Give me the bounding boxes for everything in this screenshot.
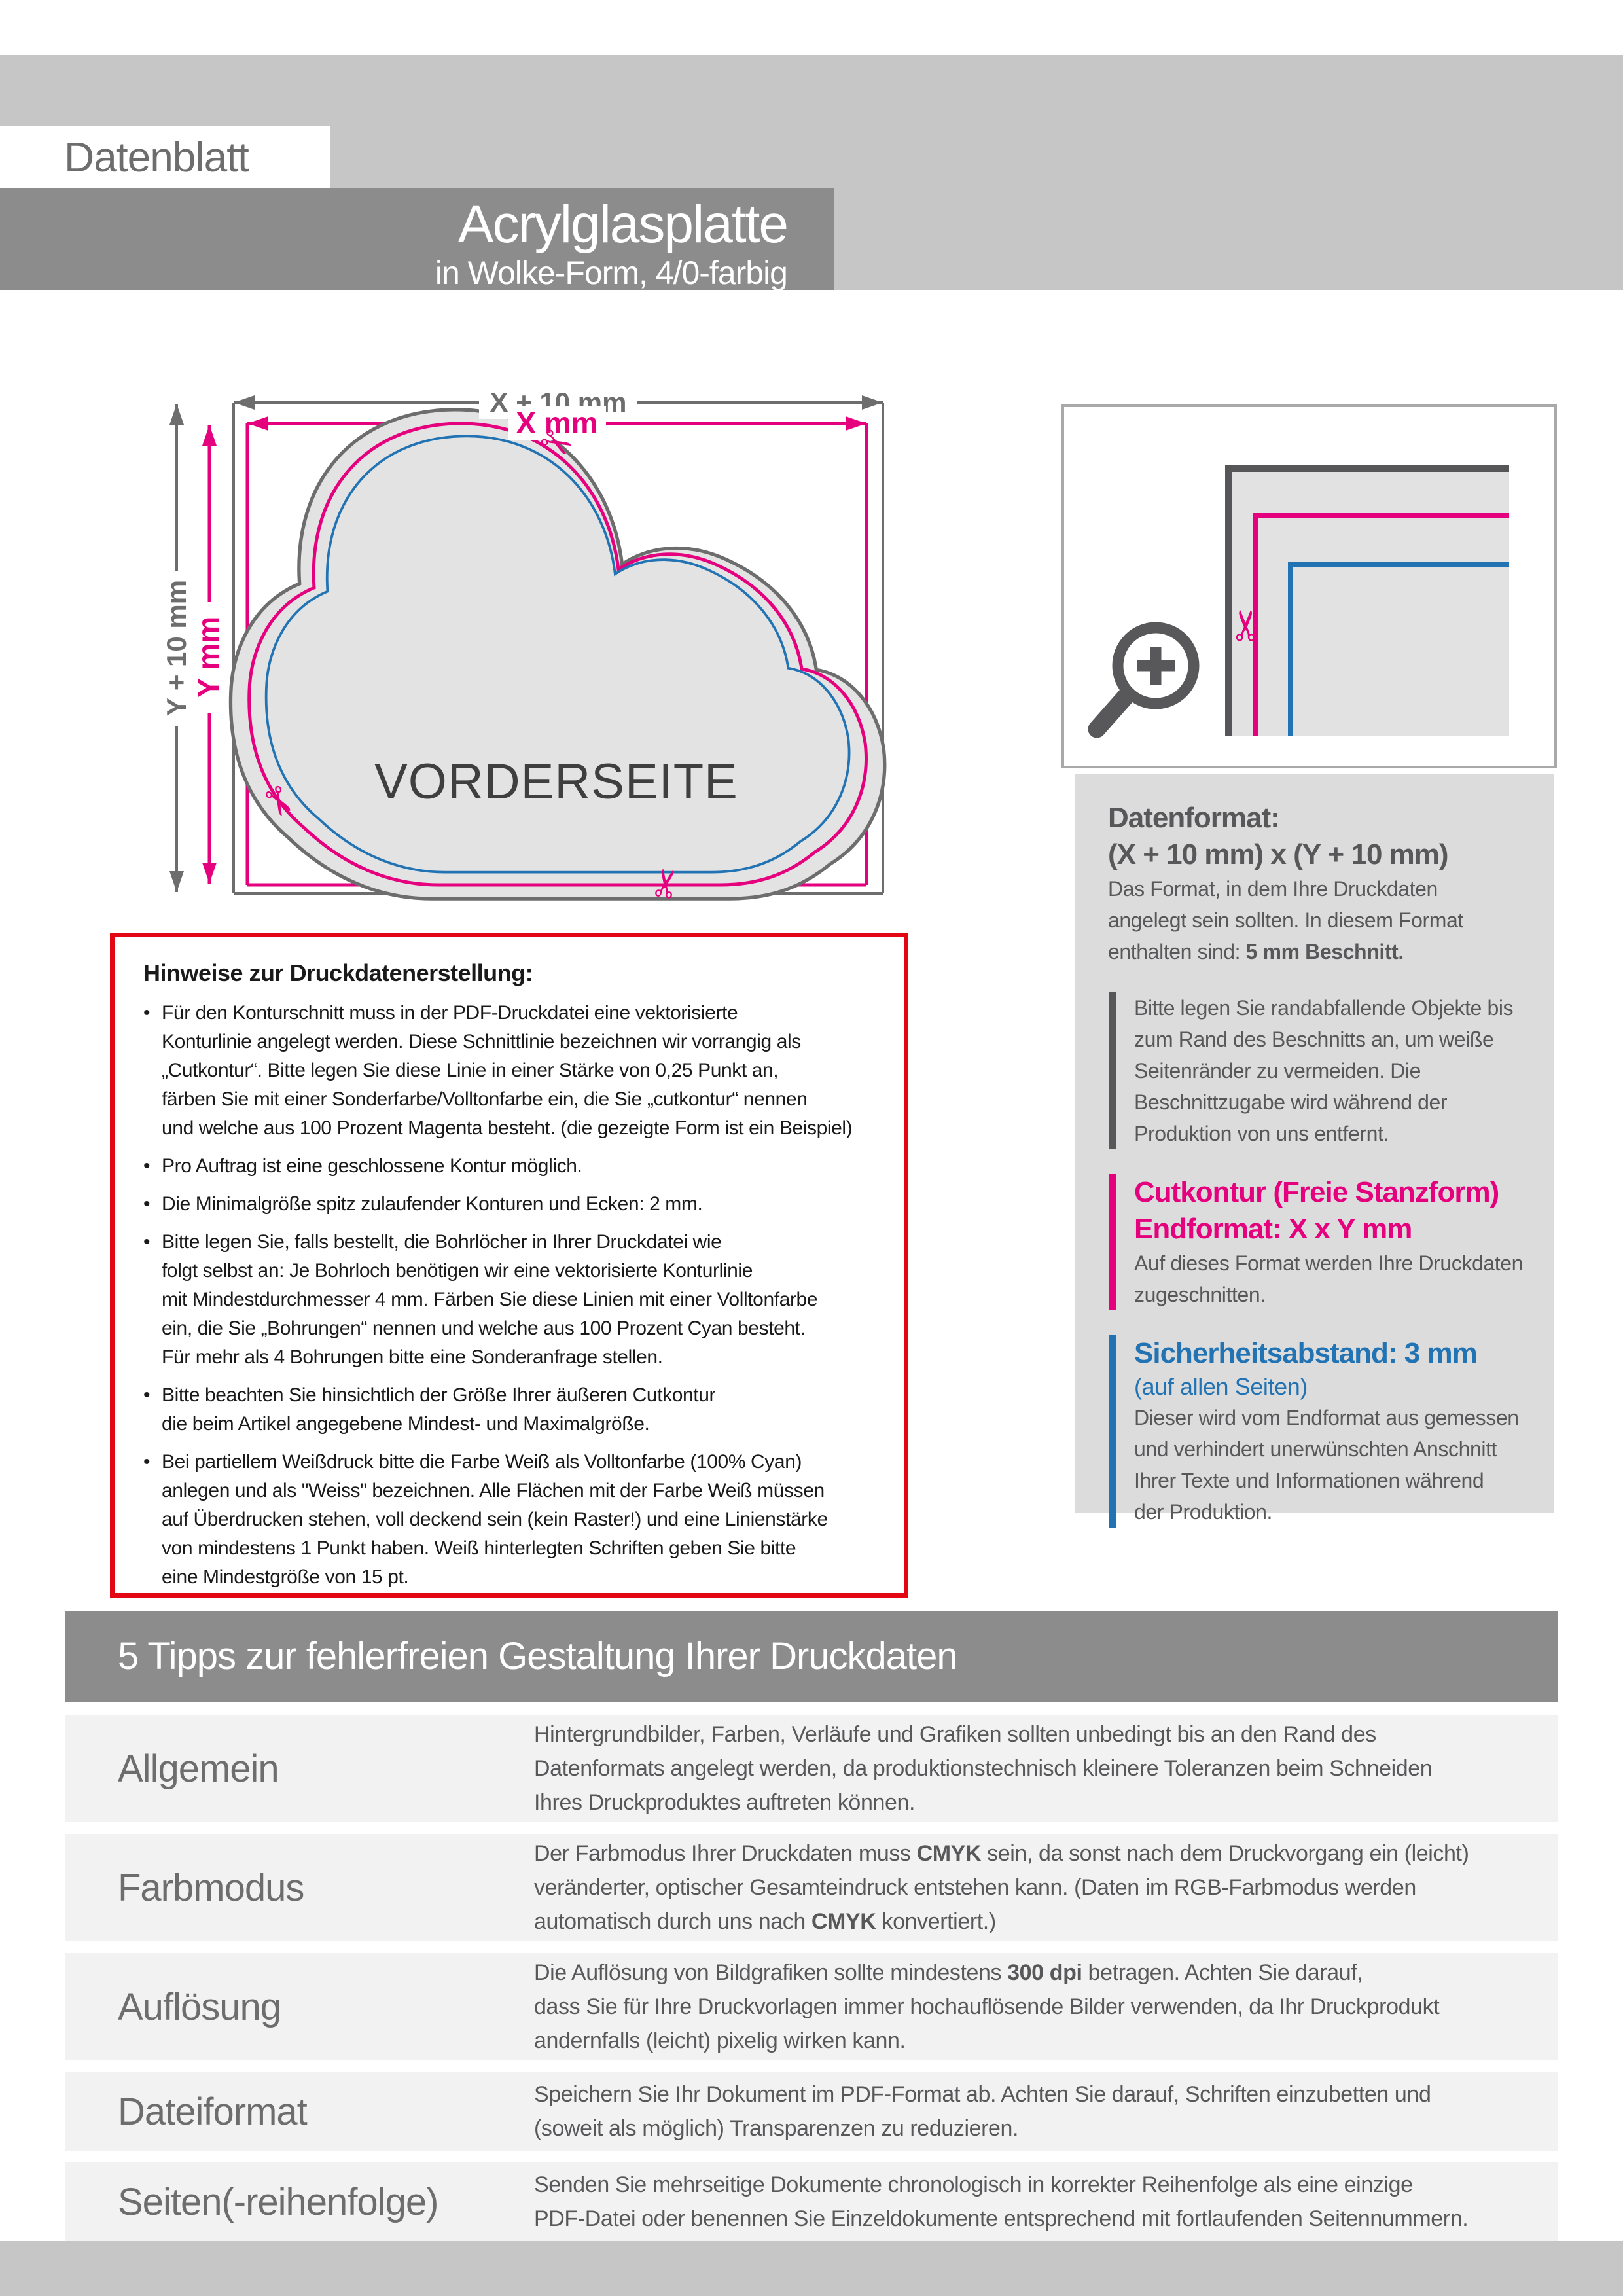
tip-description: Die Auflösung von Bildgrafiken sollte mi… [534, 1956, 1439, 2058]
product-title: Acrylglasplatte [0, 194, 787, 255]
tip-row-allgemein: Allgemein Hintergrundbilder, Farben, Ver… [65, 1715, 1558, 1822]
text-line: automatisch durch uns nach CMYK konverti… [534, 1905, 1469, 1939]
spacer [1108, 967, 1541, 992]
text-line: angelegt sein sollten. In diesem Format [1108, 905, 1541, 936]
bleed-note-text: Bitte legen Sie randabfallende Objekte b… [1134, 992, 1541, 1149]
product-title-banner: Acrylglasplatte in Wolke-Form, 4/0-farbi… [0, 188, 834, 290]
text-segment: 300 dpi [1007, 1960, 1082, 1985]
note-bullet-text: Die Minimalgröße spitz zulaufender Kontu… [162, 1190, 702, 1219]
safety-section: Sicherheitsabstand: 3 mm (auf allen Seit… [1109, 1335, 1541, 1528]
bullet-dot: • [143, 1448, 162, 1592]
text-line: mit Mindestdurchmesser 4 mm. Färben Sie … [162, 1285, 817, 1314]
datenformat-formula: (X + 10 mm) x (Y + 10 mm) [1108, 836, 1541, 873]
text-line: Der Farbmodus Ihrer Druckdaten muss CMYK… [534, 1837, 1469, 1871]
text-line: Für mehr als 4 Bohrungen bitte eine Sond… [162, 1343, 817, 1372]
text-segment: konvertiert.) [876, 1909, 995, 1934]
dim-y-inner-label: Y mm [191, 617, 225, 698]
text-line: Hintergrundbilder, Farben, Verläufe und … [534, 1717, 1432, 1751]
notes-heading: Hinweise zur Druckdatenerstellung: [143, 957, 887, 990]
text-line: Produktion von uns entfernt. [1134, 1118, 1541, 1149]
bullet-dot: • [143, 1190, 162, 1219]
text-line: Das Format, in dem Ihre Druckdaten [1108, 873, 1541, 905]
text-line: Auf dieses Format werden Ihre Druckdaten [1134, 1247, 1541, 1279]
text-line: dass Sie für Ihre Druckvorlagen immer ho… [534, 1990, 1439, 2024]
product-subtitle: in Wolke-Form, 4/0-farbig [0, 255, 787, 291]
text-line: Für den Konturschnitt muss in der PDF-Dr… [162, 999, 852, 1028]
tip-row-aufloesung: Auflösung Die Auflösung von Bildgrafiken… [65, 1953, 1558, 2060]
text-segment: automatisch durch uns nach [534, 1909, 811, 1934]
tip-row-farbmodus: Farbmodus Der Farbmodus Ihrer Druckdaten… [65, 1834, 1558, 1941]
note-bullet-text: Bei partiellem Weißdruck bitte die Farbe… [162, 1448, 828, 1592]
cutkontur-section: Cutkontur (Freie Stanzform)Endformat: X … [1109, 1174, 1541, 1310]
dim-y-outer-label: Y + 10 mm [161, 580, 192, 716]
text-line: folgt selbst an: Je Bohrloch benötigen w… [162, 1257, 817, 1285]
text-line: eine Mindestgröße von 15 pt. [162, 1563, 828, 1592]
text-line: färben Sie mit einer Sonderfarbe/Vollton… [162, 1085, 852, 1114]
detail-safety-line-h [1288, 562, 1509, 567]
bullet-dot: • [143, 999, 162, 1143]
text-line: Endformat: X x Y mm [1134, 1211, 1541, 1247]
text-segment: betragen. Achten Sie darauf, [1082, 1960, 1363, 1985]
note-bullet-text: Für den Konturschnitt muss in der PDF-Dr… [162, 999, 852, 1143]
note-bullet-text: Pro Auftrag ist eine geschlossene Kontur… [162, 1152, 582, 1181]
tip-label: Farbmodus [65, 1866, 534, 1910]
text-segment: CMYK [917, 1841, 982, 1866]
note-bullet: • Pro Auftrag ist eine geschlossene Kont… [143, 1152, 887, 1181]
text-line: Dieser wird vom Endformat aus gemessen [1134, 1402, 1541, 1433]
scissors-icon: ✂ [1222, 608, 1271, 643]
footer-band [0, 2241, 1623, 2296]
tip-label: Auflösung [65, 1985, 534, 2029]
text-segment: enthalten sind: [1108, 940, 1246, 963]
tip-label: Dateiformat [65, 2090, 534, 2134]
datenblatt-label-box: Datenblatt [0, 126, 330, 188]
detail-bleed-area [1225, 472, 1509, 736]
text-segment: 5 mm Beschnitt. [1246, 940, 1404, 963]
text-line: Beschnittzugabe wird während der [1134, 1086, 1541, 1118]
safety-body: Dieser wird vom Endformat aus gemessenun… [1134, 1402, 1541, 1528]
print-data-notes-box: Hinweise zur Druckdatenerstellung: • Für… [110, 933, 908, 1598]
tip-description: Senden Sie mehrseitige Dokumente chronol… [534, 2168, 1468, 2236]
text-line: Ihrer Texte und Informationen während [1134, 1465, 1541, 1496]
text-line: Pro Auftrag ist eine geschlossene Kontur… [162, 1152, 582, 1181]
detail-format-edge-top [1225, 465, 1509, 472]
note-bullet: • Die Minimalgröße spitz zulaufender Kon… [143, 1190, 887, 1219]
text-line: Ihres Druckproduktes auftreten können. [534, 1785, 1432, 1820]
text-line: Die Minimalgröße spitz zulaufender Kontu… [162, 1190, 702, 1219]
zoom-magnifier-icon [1077, 603, 1228, 774]
tip-row-dateiformat: Dateiformat Speichern Sie Ihr Dokument i… [65, 2072, 1558, 2151]
text-line: anlegen und als "Weiss" bezeichnen. Alle… [162, 1477, 828, 1505]
text-line: zugeschnitten. [1134, 1279, 1541, 1310]
text-line: Die Auflösung von Bildgrafiken sollte mi… [534, 1956, 1439, 1990]
tip-label: Seiten(-reihenfolge) [65, 2180, 534, 2224]
text-line: Senden Sie mehrseitige Dokumente chronol… [534, 2168, 1468, 2202]
bullet-dot: • [143, 1228, 162, 1372]
spacer [1108, 1310, 1541, 1335]
text-line: „Cutkontur“. Bitte legen Sie diese Linie… [162, 1056, 852, 1085]
text-line: zum Rand des Beschnitts an, um weiße [1134, 1024, 1541, 1055]
detail-cutkontur-line-h [1253, 513, 1509, 518]
text-line: der Produktion. [1134, 1496, 1541, 1528]
text-segment: Der Farbmodus Ihrer Druckdaten muss [534, 1841, 917, 1866]
bullet-dot: • [143, 1381, 162, 1439]
tip-row-seitenreihenfolge: Seiten(-reihenfolge) Senden Sie mehrseit… [65, 2162, 1558, 2241]
tips-banner: 5 Tipps zur fehlerfreien Gestaltung Ihre… [65, 1611, 1558, 1702]
tips-banner-title: 5 Tipps zur fehlerfreien Gestaltung Ihre… [65, 1611, 1558, 1702]
corner-zoom-detail-box: ✂ [1061, 404, 1557, 768]
bleed-note-section: Bitte legen Sie randabfallende Objekte b… [1109, 992, 1541, 1149]
note-bullet: • Für den Konturschnitt muss in der PDF-… [143, 999, 887, 1143]
text-line: Speichern Sie Ihr Dokument im PDF-Format… [534, 2077, 1431, 2111]
cloud-shape-diagram: X + 10 mm X mm Y + 10 mm Y mm VORDERSEIT… [157, 367, 916, 923]
format-info-panel: Datenformat: (X + 10 mm) x (Y + 10 mm) D… [1075, 774, 1554, 1513]
text-line: (soweit als möglich) Transparenzen zu re… [534, 2111, 1431, 2145]
note-bullet: • Bitte legen Sie, falls bestellt, die B… [143, 1228, 887, 1372]
spacer [1108, 1149, 1541, 1174]
text-line: PDF-Datei oder benennen Sie Einzeldokume… [534, 2202, 1468, 2236]
text-line: andernfalls (leicht) pixelig wirken kann… [534, 2024, 1439, 2058]
text-line: Bitte legen Sie, falls bestellt, die Boh… [162, 1228, 817, 1257]
bullet-dot: • [143, 1152, 162, 1181]
safety-subheading: (auf allen Seiten) [1134, 1372, 1541, 1402]
text-line: von mindestens 1 Punkt haben. Weiß hinte… [162, 1534, 828, 1563]
tip-description: Der Farbmodus Ihrer Druckdaten muss CMYK… [534, 1837, 1469, 1939]
tip-description: Hintergrundbilder, Farben, Verläufe und … [534, 1717, 1432, 1820]
text-line: die beim Artikel angegebene Mindest- und… [162, 1410, 715, 1439]
note-bullet-text: Bitte legen Sie, falls bestellt, die Boh… [162, 1228, 817, 1372]
page-title: Datenblatt [0, 126, 330, 188]
note-bullet-text: Bitte beachten Sie hinsichtlich der Größ… [162, 1381, 715, 1439]
text-segment: CMYK [811, 1909, 876, 1934]
text-line: Datenformats angelegt werden, da produkt… [534, 1751, 1432, 1785]
text-segment: Die Auflösung von Bildgrafiken sollte mi… [534, 1960, 1007, 1985]
text-line: und verhindert unerwünschten Anschnitt [1134, 1433, 1541, 1465]
text-segment: sein, da sonst nach dem Druckvorgang ein… [981, 1841, 1469, 1866]
text-line: Seitenränder zu vermeiden. Die [1134, 1055, 1541, 1086]
text-line: Cutkontur (Freie Stanzform) [1134, 1174, 1541, 1211]
cutkontur-body: Auf dieses Format werden Ihre Druckdaten… [1134, 1247, 1541, 1310]
note-bullet: • Bei partiellem Weißdruck bitte die Far… [143, 1448, 887, 1592]
front-side-label: VORDERSEITE [374, 754, 738, 810]
note-bullet: • Bitte beachten Sie hinsichtlich der Gr… [143, 1381, 887, 1439]
text-line: Konturlinie angelegt werden. Diese Schni… [162, 1028, 852, 1056]
text-line: veränderter, optischer Gesamteindruck en… [534, 1871, 1469, 1905]
text-line: Bitte legen Sie randabfallende Objekte b… [1134, 992, 1541, 1024]
text-line: ein, die Sie „Bohrungen“ nennen und welc… [162, 1314, 817, 1343]
text-line: enthalten sind: 5 mm Beschnitt. [1108, 936, 1541, 967]
datenformat-heading: Datenformat: [1108, 800, 1541, 836]
datasheet-page: Datenblatt Acrylglasplatte in Wolke-Form… [0, 0, 1623, 2296]
text-line: und welche aus 100 Prozent Magenta beste… [162, 1114, 852, 1143]
cutkontur-heading: Cutkontur (Freie Stanzform)Endformat: X … [1134, 1174, 1541, 1247]
text-line: Bitte beachten Sie hinsichtlich der Größ… [162, 1381, 715, 1410]
tip-label: Allgemein [65, 1747, 534, 1791]
text-line: auf Überdrucken stehen, voll deckend sei… [162, 1505, 828, 1534]
detail-format-edge-left [1225, 472, 1232, 736]
text-line: Bei partiellem Weißdruck bitte die Farbe… [162, 1448, 828, 1477]
safety-heading: Sicherheitsabstand: 3 mm [1134, 1335, 1541, 1372]
detail-safety-line-v [1288, 562, 1293, 736]
datenformat-body: Das Format, in dem Ihre Druckdatenangele… [1108, 873, 1541, 967]
tip-description: Speichern Sie Ihr Dokument im PDF-Format… [534, 2077, 1431, 2145]
